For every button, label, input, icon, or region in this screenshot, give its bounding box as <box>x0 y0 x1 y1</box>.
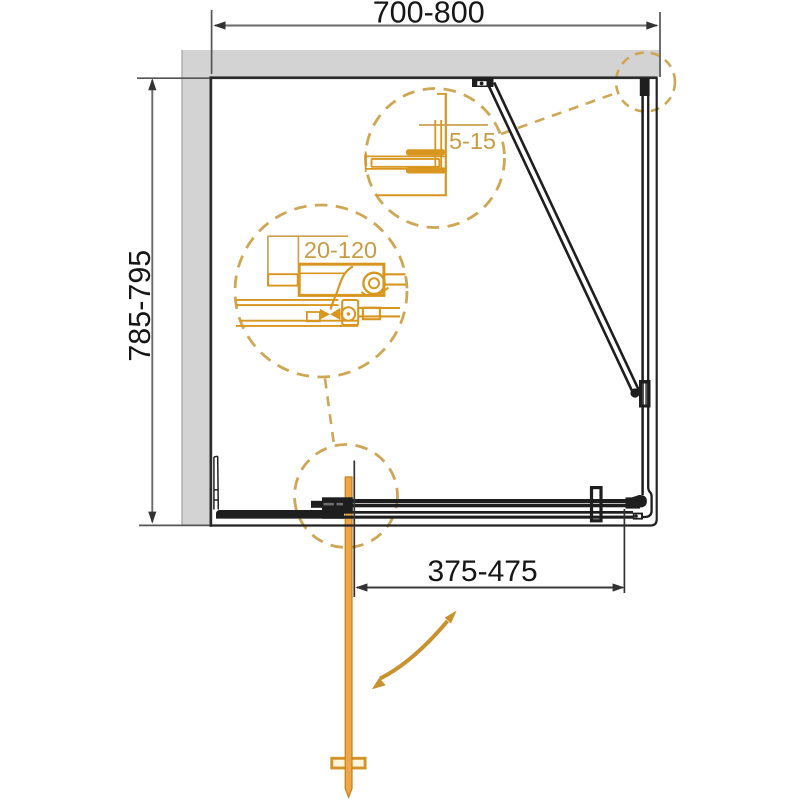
svg-text:375-475: 375-475 <box>428 555 538 588</box>
svg-text:785-795: 785-795 <box>123 250 157 362</box>
svg-text:20-120: 20-120 <box>304 237 377 263</box>
svg-text:700-800: 700-800 <box>373 0 485 30</box>
svg-text:5-15: 5-15 <box>449 128 496 154</box>
